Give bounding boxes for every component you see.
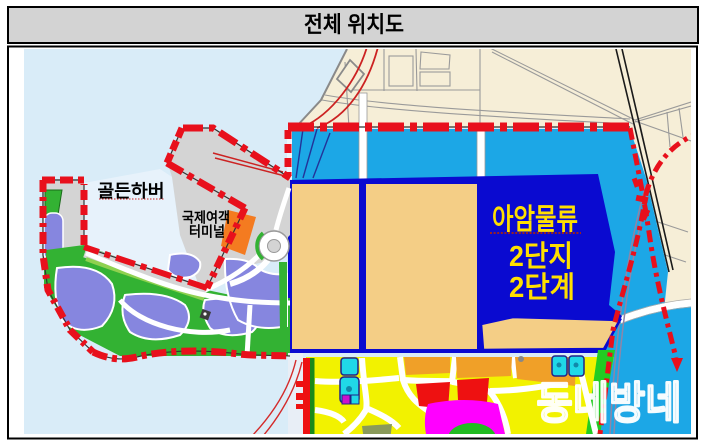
svg-text:동네방네: 동네방네 <box>537 379 682 428</box>
svg-text:2단지: 2단지 <box>509 240 573 273</box>
svg-text:2단계: 2단계 <box>509 271 575 304</box>
svg-text:아암물류: 아암물류 <box>492 203 578 236</box>
svg-text:골든하버: 골든하버 <box>98 181 165 201</box>
svg-text:전체 위치도: 전체 위치도 <box>304 12 404 37</box>
svg-text:터미널: 터미널 <box>189 224 225 240</box>
